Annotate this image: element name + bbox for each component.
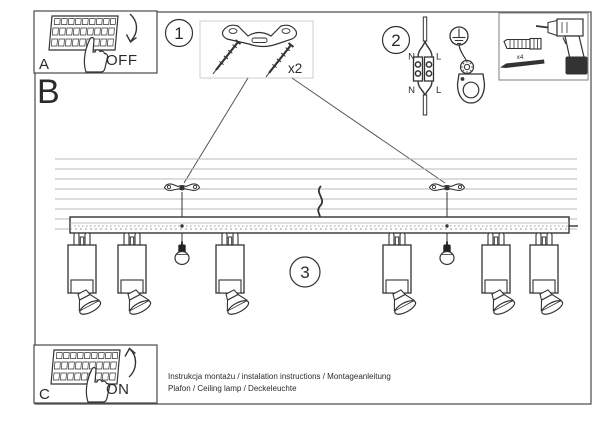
step-2-number: 2	[391, 31, 400, 50]
lamp-track	[70, 217, 578, 233]
step-1-number: 1	[174, 24, 183, 43]
tools-box: x4	[499, 13, 588, 80]
panel-a-label: A	[39, 56, 49, 73]
panel-c: C ON	[34, 345, 157, 403]
terminal-label-n-top: N	[408, 52, 415, 63]
terminal-label-l-bottom: L	[436, 85, 441, 96]
terminal-label-l-top: L	[436, 52, 441, 63]
tools-quantity: x4	[517, 54, 524, 61]
wall-plug-icon	[504, 39, 541, 50]
panel-a: A OFF	[34, 11, 157, 73]
fusebox-icon	[51, 350, 120, 384]
section-b-label: B	[37, 73, 60, 111]
panel-c-label: C	[39, 386, 50, 403]
footer-line-2: Plafon / Ceiling lamp / Deckeleuchte	[168, 384, 297, 393]
instruction-sheet: A OFF B 1 x2 2	[0, 0, 600, 424]
instruction-diagram: A OFF B 1 x2 2	[0, 0, 600, 424]
step-1-quantity: x2	[288, 61, 302, 76]
panel-c-state: ON	[106, 381, 130, 398]
panel-a-state: OFF	[106, 52, 138, 69]
fusebox-icon	[49, 16, 118, 50]
terminal-label-n-bottom: N	[408, 85, 415, 96]
footer-line-1: Instrukcja montażu / instalation instruc…	[168, 372, 391, 381]
step-3: 3	[290, 257, 320, 287]
step-3-number: 3	[300, 263, 309, 282]
